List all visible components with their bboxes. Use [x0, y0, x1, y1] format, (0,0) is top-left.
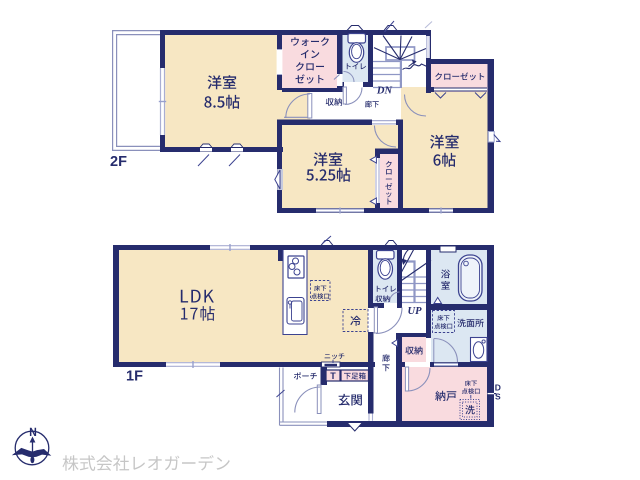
svg-text:2F: 2F — [110, 154, 127, 170]
svg-text:T: T — [330, 371, 336, 381]
svg-text:DN: DN — [376, 86, 393, 97]
svg-text:1F: 1F — [126, 369, 143, 385]
svg-text:S: S — [495, 392, 501, 402]
svg-text:UP: UP — [408, 306, 423, 317]
